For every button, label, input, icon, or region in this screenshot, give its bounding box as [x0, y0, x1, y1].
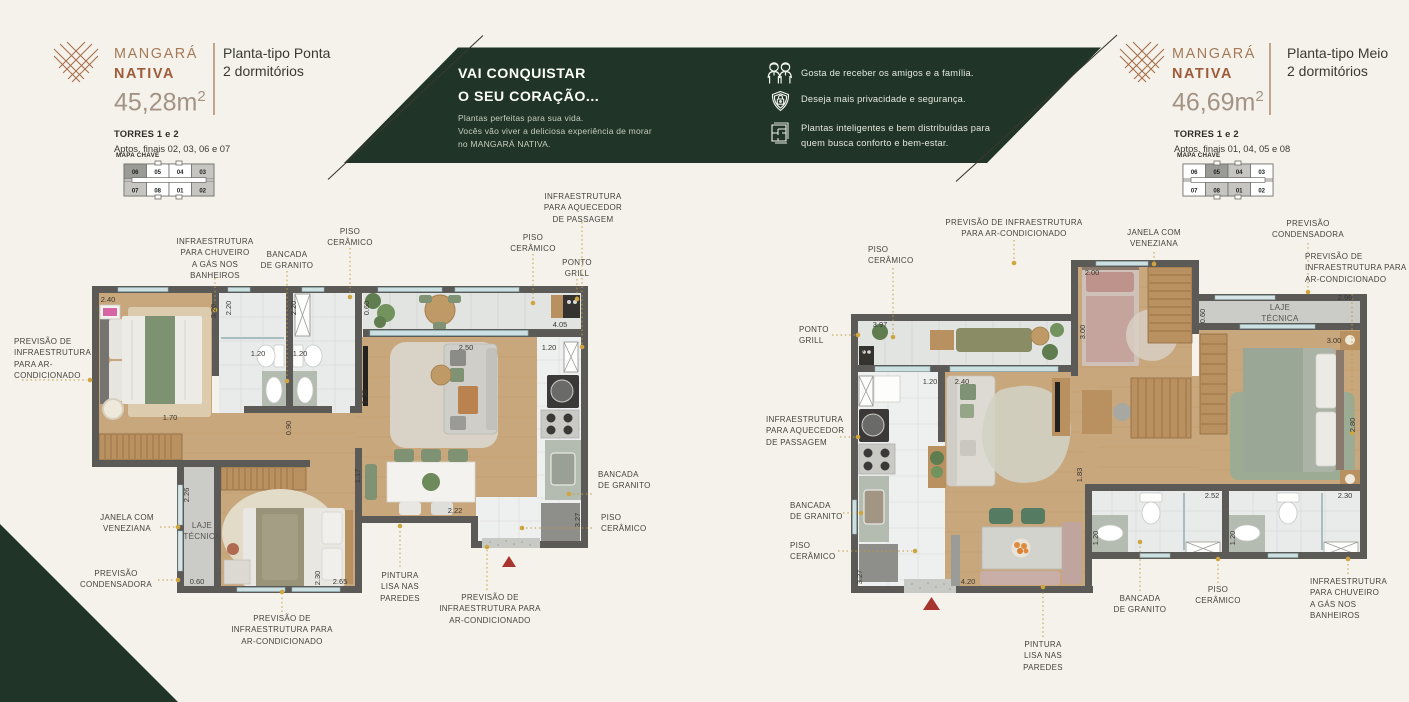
svg-text:1.38: 1.38 — [360, 390, 369, 405]
svg-text:2.52: 2.52 — [1205, 491, 1220, 500]
svg-text:06: 06 — [1191, 170, 1198, 176]
svg-text:02: 02 — [1258, 189, 1265, 195]
svg-text:1.70: 1.70 — [163, 413, 178, 422]
svg-text:2.50: 2.50 — [459, 343, 474, 352]
svg-text:01: 01 — [177, 189, 184, 195]
svg-text:1.20: 1.20 — [1091, 531, 1100, 546]
svg-text:0.60: 0.60 — [1198, 309, 1207, 324]
svg-text:3.27: 3.27 — [573, 513, 582, 528]
svg-text:0.60: 0.60 — [362, 301, 371, 316]
svg-text:3.00: 3.00 — [1327, 336, 1342, 345]
svg-text:3.20: 3.20 — [209, 304, 218, 319]
svg-text:07: 07 — [132, 189, 139, 195]
svg-text:1.20: 1.20 — [251, 349, 266, 358]
svg-text:2.22: 2.22 — [448, 506, 463, 515]
svg-text:05: 05 — [154, 170, 161, 176]
svg-text:1.20: 1.20 — [1228, 531, 1237, 546]
svg-text:2.20: 2.20 — [224, 301, 233, 316]
svg-text:3.97: 3.97 — [873, 320, 888, 329]
svg-text:4.20: 4.20 — [961, 577, 976, 586]
svg-text:2.20: 2.20 — [289, 301, 298, 316]
svg-text:1.17: 1.17 — [353, 469, 362, 484]
svg-text:0.80: 0.80 — [857, 349, 866, 364]
svg-text:04: 04 — [1236, 170, 1243, 176]
svg-text:2.00: 2.00 — [1085, 268, 1100, 277]
svg-text:3.00: 3.00 — [1078, 325, 1087, 340]
svg-text:1.20: 1.20 — [293, 349, 308, 358]
svg-text:0.60: 0.60 — [190, 577, 205, 586]
svg-text:2.80: 2.80 — [1348, 418, 1357, 433]
svg-text:2.40: 2.40 — [101, 295, 116, 304]
svg-text:08: 08 — [154, 189, 161, 195]
svg-text:05: 05 — [1213, 170, 1220, 176]
svg-text:0.90: 0.90 — [284, 421, 293, 436]
svg-text:07: 07 — [1191, 189, 1198, 195]
svg-text:2.26: 2.26 — [182, 488, 191, 503]
svg-text:2.40: 2.40 — [955, 377, 970, 386]
svg-text:1.20: 1.20 — [542, 343, 557, 352]
svg-text:01: 01 — [1236, 189, 1243, 195]
svg-text:2.30: 2.30 — [1338, 491, 1353, 500]
svg-text:4.05: 4.05 — [553, 320, 568, 329]
svg-text:3.27: 3.27 — [855, 570, 864, 585]
svg-text:2.30: 2.30 — [313, 571, 322, 586]
svg-text:2.65: 2.65 — [333, 577, 348, 586]
svg-text:03: 03 — [1258, 170, 1265, 176]
svg-text:1.20: 1.20 — [923, 377, 938, 386]
svg-text:04: 04 — [177, 170, 184, 176]
svg-text:1.83: 1.83 — [1075, 468, 1084, 483]
svg-text:2.96: 2.96 — [1338, 293, 1353, 302]
svg-text:08: 08 — [1213, 189, 1220, 195]
svg-text:06: 06 — [132, 170, 139, 176]
svg-text:02: 02 — [199, 189, 206, 195]
svg-text:03: 03 — [199, 170, 206, 176]
